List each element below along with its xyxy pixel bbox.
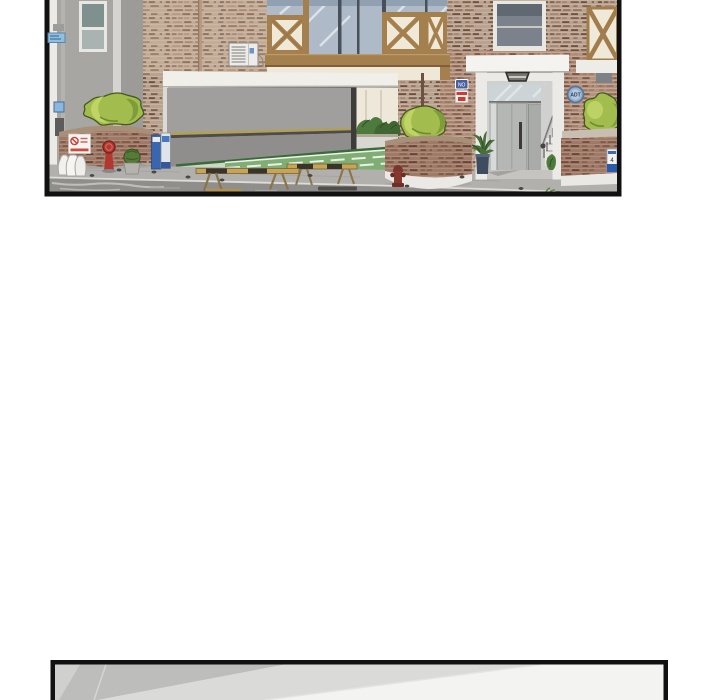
- svg-text:NO: NO: [458, 83, 466, 89]
- svg-text:ADT: ADT: [570, 93, 580, 99]
